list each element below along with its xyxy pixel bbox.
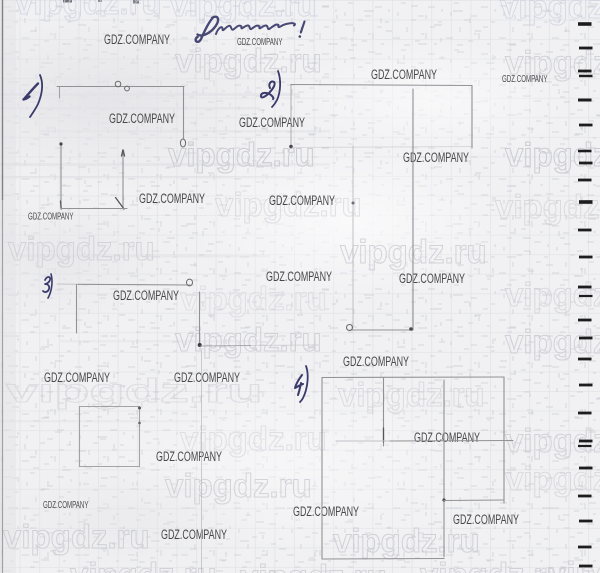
svg-text:vipgdz.ru: vipgdz.ru: [505, 136, 600, 173]
svg-text:GDZ.COMPANY: GDZ.COMPANY: [113, 288, 179, 303]
svg-text:GDZ.COMPANY: GDZ.COMPANY: [414, 430, 480, 445]
svg-text:GDZ.COMPANY: GDZ.COMPANY: [44, 370, 110, 385]
svg-text:vipgdz.ru: vipgdz.ru: [548, 555, 600, 573]
svg-text:GDZ.COMPANY: GDZ.COMPANY: [109, 111, 175, 126]
svg-text:GDZ.COMPANY: GDZ.COMPANY: [43, 498, 89, 510]
svg-text:GDZ.COMPANY: GDZ.COMPANY: [371, 67, 437, 82]
svg-text:vipgdz.ru: vipgdz.ru: [15, 0, 162, 21]
svg-text:GDZ.COMPANY: GDZ.COMPANY: [293, 504, 359, 519]
svg-text:GDZ.COMPANY: GDZ.COMPANY: [174, 370, 240, 385]
svg-text:vipgdz.ru: vipgdz.ru: [175, 42, 322, 79]
svg-text:GDZ.COMPANY: GDZ.COMPANY: [28, 210, 74, 222]
svg-text:vipgdz.ru: vipgdz.ru: [165, 467, 312, 504]
svg-text:vipgdz.ru: vipgdz.ru: [338, 376, 485, 413]
svg-text:GDZ.COMPANY: GDZ.COMPANY: [269, 193, 335, 208]
svg-text:vipgdz.ru: vipgdz.ru: [3, 518, 150, 555]
svg-text:vipgdz.ru: vipgdz.ru: [500, 0, 600, 25]
svg-text:vipgdz.ru: vipgdz.ru: [505, 276, 600, 313]
svg-text:vipgdz.ru: vipgdz.ru: [168, 136, 315, 173]
svg-text:vipgdz.ru: vipgdz.ru: [240, 558, 387, 573]
svg-text:vipgdz.ru: vipgdz.ru: [8, 230, 155, 267]
svg-text:GDZ.COMPANY: GDZ.COMPANY: [453, 512, 519, 527]
svg-text:GDZ.COMPANY: GDZ.COMPANY: [266, 269, 332, 284]
svg-text:vipgdz.ru: vipgdz.ru: [170, 0, 317, 23]
svg-text:vipgdz.ru: vipgdz.ru: [175, 321, 322, 358]
svg-text:vipgdz.ru: vipgdz.ru: [70, 556, 217, 573]
svg-text:GDZ.COMPANY: GDZ.COMPANY: [239, 115, 305, 130]
svg-text:GDZ.COMPANY: GDZ.COMPANY: [237, 35, 283, 47]
svg-text:GDZ.COMPANY: GDZ.COMPANY: [139, 191, 205, 206]
svg-text:GDZ.COMPANY: GDZ.COMPANY: [104, 32, 170, 47]
svg-text:GDZ.COMPANY: GDZ.COMPANY: [156, 449, 222, 464]
svg-text:GDZ.COMPANY: GDZ.COMPANY: [502, 72, 548, 84]
svg-text:GDZ.COMPANY: GDZ.COMPANY: [343, 354, 409, 369]
svg-text:vipgdz.ru: vipgdz.ru: [505, 460, 600, 497]
svg-text:vipgdz.ru: vipgdz.ru: [495, 188, 600, 225]
svg-text:GDZ.COMPANY: GDZ.COMPANY: [399, 271, 465, 286]
svg-text:vipgdz.ru: vipgdz.ru: [505, 323, 600, 360]
svg-text:vipgdz.ru: vipgdz.ru: [180, 280, 327, 317]
svg-text:GDZ.COMPANY: GDZ.COMPANY: [161, 527, 227, 542]
